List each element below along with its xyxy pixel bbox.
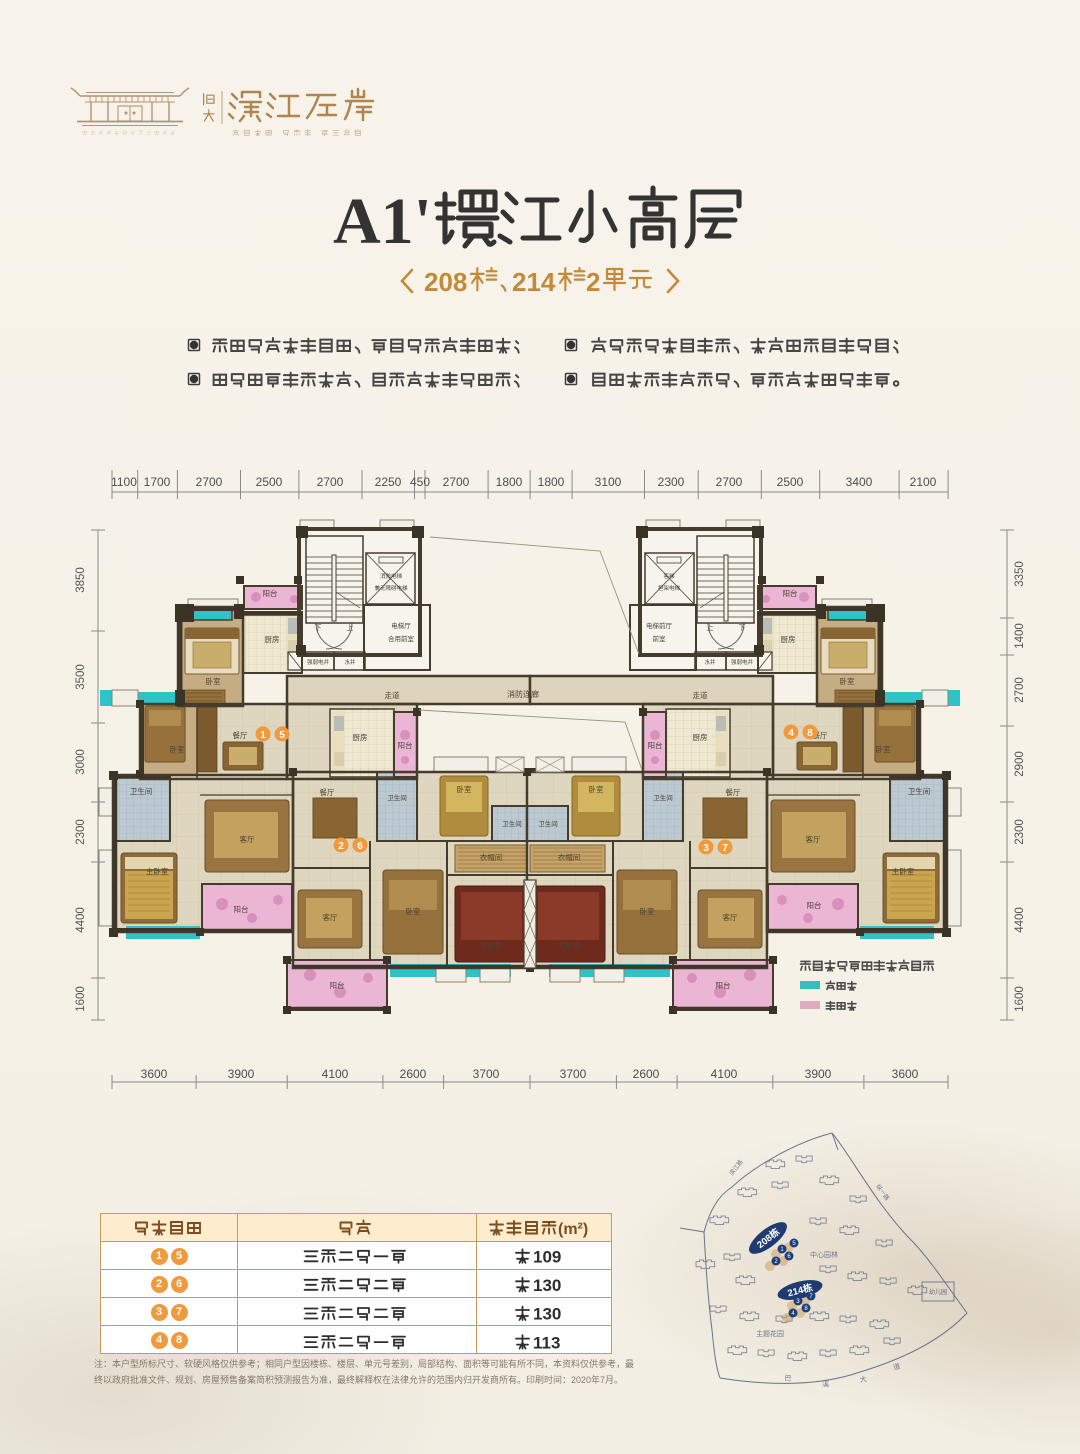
svg-text:2300: 2300 xyxy=(658,475,685,489)
svg-text:2600: 2600 xyxy=(400,1067,427,1081)
svg-text:3600: 3600 xyxy=(892,1067,919,1081)
svg-text:208: 208 xyxy=(424,267,467,297)
svg-text:1100: 1100 xyxy=(111,475,137,489)
svg-text:2: 2 xyxy=(338,841,344,852)
svg-text:餐厅: 餐厅 xyxy=(320,788,335,797)
svg-text:兼无障碍电梯: 兼无障碍电梯 xyxy=(374,584,408,592)
svg-text:卧室: 卧室 xyxy=(840,676,855,686)
svg-text:卫生间: 卫生间 xyxy=(502,819,522,828)
svg-text:A1': A1' xyxy=(333,185,432,258)
svg-text:阳台: 阳台 xyxy=(716,980,731,990)
svg-text:4400: 4400 xyxy=(75,907,87,933)
svg-text:3100: 3100 xyxy=(595,475,622,489)
svg-text:2700: 2700 xyxy=(196,475,223,489)
svg-text:1600: 1600 xyxy=(75,986,87,1012)
svg-text:1400: 1400 xyxy=(1014,623,1026,649)
svg-text:2100: 2100 xyxy=(910,475,937,489)
svg-text:2700: 2700 xyxy=(443,475,470,489)
svg-text:4400: 4400 xyxy=(1014,907,1026,933)
svg-text:2: 2 xyxy=(586,267,600,297)
svg-text:阳台: 阳台 xyxy=(234,904,249,914)
svg-text:3900: 3900 xyxy=(805,1067,832,1081)
svg-text:1: 1 xyxy=(260,730,266,741)
svg-text:阳台: 阳台 xyxy=(263,588,278,598)
svg-text:卧室: 卧室 xyxy=(170,744,185,754)
svg-text:3: 3 xyxy=(703,843,709,854)
svg-text:阳台: 阳台 xyxy=(807,900,822,910)
svg-text:前室: 前室 xyxy=(653,634,667,643)
svg-text:客厅: 客厅 xyxy=(806,834,821,844)
svg-text:3350: 3350 xyxy=(1014,561,1026,587)
svg-text:(m²): (m²) xyxy=(558,1221,588,1238)
svg-text:厨房: 厨房 xyxy=(353,732,368,742)
svg-text:109: 109 xyxy=(533,1248,561,1267)
svg-text:卧室: 卧室 xyxy=(876,744,891,754)
svg-text:担架电梯: 担架电梯 xyxy=(658,584,681,592)
svg-text:合用前室: 合用前室 xyxy=(388,634,415,643)
svg-text:客厅: 客厅 xyxy=(323,912,338,922)
svg-text:大: 大 xyxy=(859,1374,867,1384)
svg-text:5: 5 xyxy=(279,730,285,741)
svg-text:厨房: 厨房 xyxy=(265,634,280,644)
svg-text:3000: 3000 xyxy=(75,749,87,775)
svg-text:130: 130 xyxy=(533,1276,561,1295)
svg-text:餐厅: 餐厅 xyxy=(233,731,248,740)
svg-text:客梯: 客梯 xyxy=(663,572,675,580)
svg-text:水井: 水井 xyxy=(344,658,356,666)
svg-text:卫生间: 卫生间 xyxy=(387,793,407,802)
svg-text:1800: 1800 xyxy=(538,475,565,489)
svg-text:厨房: 厨房 xyxy=(781,634,796,644)
svg-text:7: 7 xyxy=(722,843,728,854)
svg-text:电梯前厅: 电梯前厅 xyxy=(646,621,673,630)
svg-text:8: 8 xyxy=(807,728,813,739)
svg-text:卫生间: 卫生间 xyxy=(538,819,558,828)
svg-text:3850: 3850 xyxy=(75,567,87,593)
svg-text:强弱电井: 强弱电井 xyxy=(307,658,330,666)
svg-text:下: 下 xyxy=(315,624,322,632)
svg-text:下: 下 xyxy=(739,624,746,632)
svg-text:3500: 3500 xyxy=(75,664,87,690)
svg-text:卧室: 卧室 xyxy=(457,784,472,794)
svg-text:1800: 1800 xyxy=(496,475,523,489)
svg-text:幼儿园: 幼儿园 xyxy=(929,1288,947,1296)
svg-text:阳台: 阳台 xyxy=(330,980,345,990)
svg-text:主卧室: 主卧室 xyxy=(558,940,581,950)
svg-text:1600: 1600 xyxy=(1014,986,1026,1012)
svg-text:主题花园: 主题花园 xyxy=(756,1329,784,1338)
svg-text:214: 214 xyxy=(512,267,556,297)
svg-text:客厅: 客厅 xyxy=(240,834,255,844)
svg-text:卫生间: 卫生间 xyxy=(908,786,931,796)
svg-text:卧室: 卧室 xyxy=(640,906,655,916)
svg-text:水井: 水井 xyxy=(704,658,716,666)
svg-text:2700: 2700 xyxy=(716,475,743,489)
svg-text:中心园林: 中心园林 xyxy=(810,1250,838,1259)
svg-text:2500: 2500 xyxy=(256,475,283,489)
svg-text:2300: 2300 xyxy=(75,819,87,845)
svg-text:电梯厅: 电梯厅 xyxy=(391,621,411,630)
svg-text:3400: 3400 xyxy=(846,475,873,489)
svg-text:130: 130 xyxy=(533,1305,561,1324)
svg-text:113: 113 xyxy=(533,1333,560,1352)
svg-text:消防电梯: 消防电梯 xyxy=(380,572,403,580)
svg-text:2700: 2700 xyxy=(1014,677,1026,703)
svg-text:4100: 4100 xyxy=(322,1067,349,1081)
svg-text:3600: 3600 xyxy=(141,1067,168,1081)
svg-text:2250: 2250 xyxy=(375,475,402,489)
svg-text:衣帽间: 衣帽间 xyxy=(558,852,581,862)
svg-text:巴: 巴 xyxy=(784,1374,792,1383)
svg-text:餐厅: 餐厅 xyxy=(726,788,741,797)
svg-text:3700: 3700 xyxy=(473,1067,500,1081)
svg-text:卧室: 卧室 xyxy=(206,676,221,686)
svg-text:主卧室: 主卧室 xyxy=(480,940,503,950)
svg-text:2300: 2300 xyxy=(1014,819,1026,845)
svg-text:滨江路: 滨江路 xyxy=(727,1158,744,1177)
svg-text:上: 上 xyxy=(707,623,714,632)
svg-text:衣帽间: 衣帽间 xyxy=(480,852,503,862)
svg-text:上: 上 xyxy=(347,623,354,632)
svg-text:主卧室: 主卧室 xyxy=(892,866,915,876)
svg-text:6: 6 xyxy=(357,841,363,852)
svg-text:阳台: 阳台 xyxy=(783,588,798,598)
svg-text:阳台: 阳台 xyxy=(648,740,663,750)
svg-text:强弱电井: 强弱电井 xyxy=(731,658,754,666)
svg-text:客厅: 客厅 xyxy=(723,912,738,922)
svg-text:2500: 2500 xyxy=(777,475,804,489)
svg-text:阳台: 阳台 xyxy=(398,740,413,750)
svg-text:3900: 3900 xyxy=(228,1067,255,1081)
svg-text:2900: 2900 xyxy=(1014,751,1026,777)
svg-text:450: 450 xyxy=(410,475,430,489)
svg-text:厨房: 厨房 xyxy=(693,732,708,742)
svg-text:走道: 走道 xyxy=(385,690,400,700)
svg-text:道: 道 xyxy=(892,1361,901,1372)
svg-text:3700: 3700 xyxy=(560,1067,587,1081)
svg-text:4: 4 xyxy=(788,728,794,739)
svg-text:4100: 4100 xyxy=(711,1067,738,1081)
svg-text:主卧室: 主卧室 xyxy=(146,866,169,876)
svg-text:卧室: 卧室 xyxy=(589,784,604,794)
svg-text:消防连廊: 消防连廊 xyxy=(507,689,539,699)
svg-text:1700: 1700 xyxy=(144,475,171,489)
svg-text:2700: 2700 xyxy=(317,475,344,489)
svg-text:卫生间: 卫生间 xyxy=(653,793,673,802)
svg-text:走道: 走道 xyxy=(693,690,708,700)
svg-text:2600: 2600 xyxy=(633,1067,660,1081)
svg-text:卫生间: 卫生间 xyxy=(130,786,153,796)
svg-text:卧室: 卧室 xyxy=(406,906,421,916)
